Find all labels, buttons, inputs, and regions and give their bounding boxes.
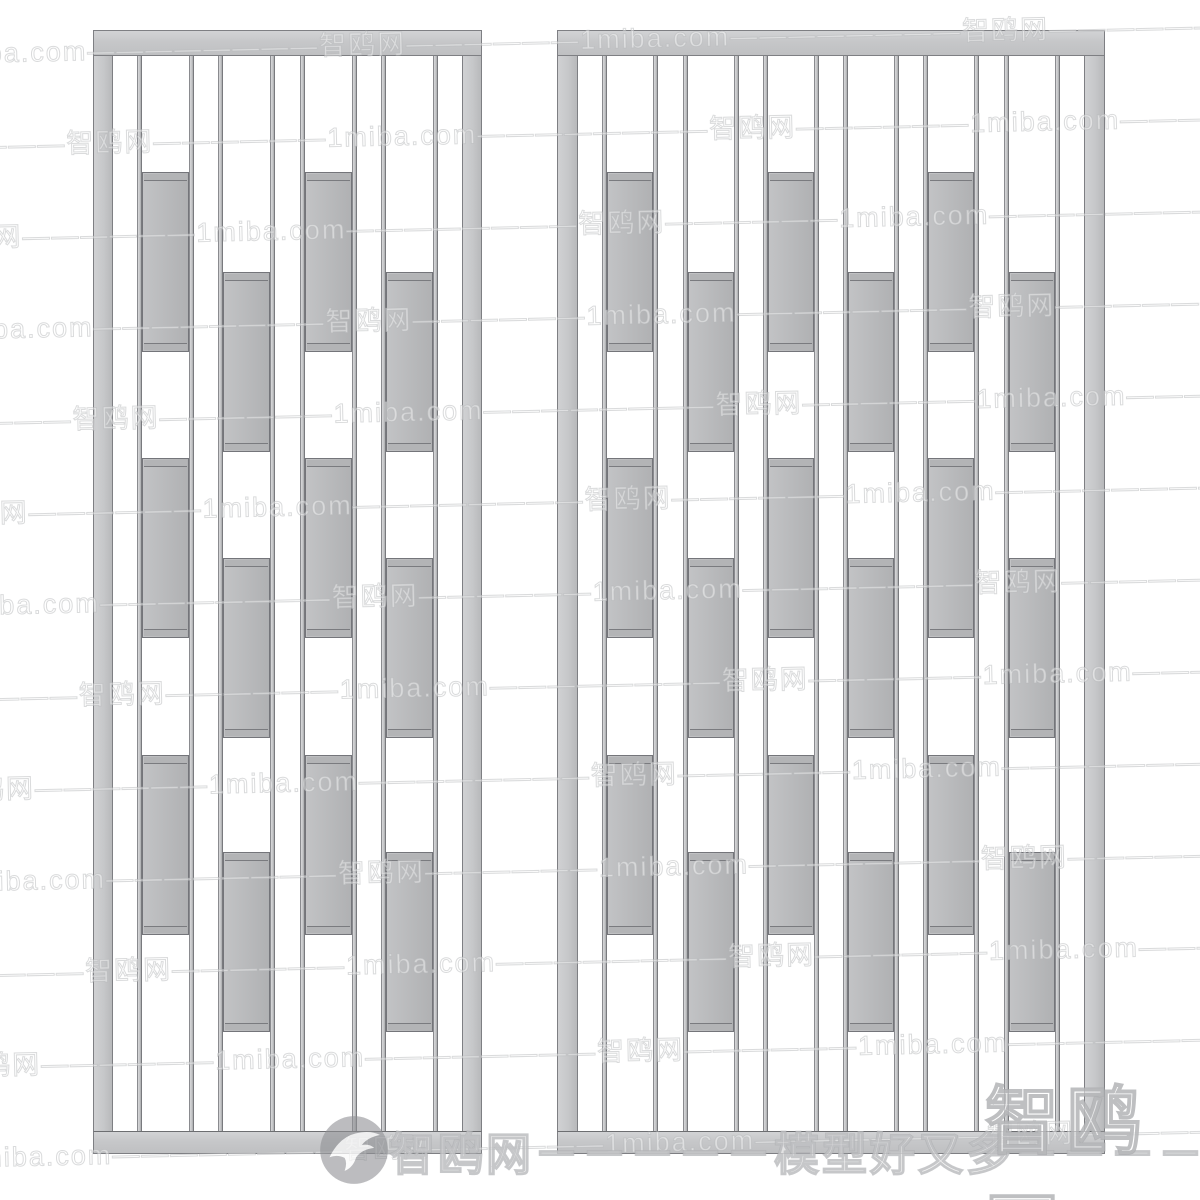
gap [979,56,1003,1131]
1miba-bird-logo-icon [318,1114,390,1186]
top-rail [93,30,482,56]
gap [819,56,843,1131]
gap [578,56,602,1131]
gap [899,56,923,1131]
panel-inner [93,56,482,1131]
gap [113,56,137,1131]
gap [194,56,218,1131]
infill-block [768,458,814,638]
left-screen [93,30,482,1154]
gap [275,56,299,1131]
infill-block [688,272,734,452]
infill-block [386,272,433,452]
gap [438,56,462,1131]
infill-block [1009,852,1055,1032]
block-channel-4 [848,56,894,1131]
watermark-site-id: 智鸥网 ID:230669984 [985,1062,1200,1200]
infill-block [223,272,270,452]
infill-block [607,458,653,638]
block-channel-1 [607,56,653,1131]
panel-inner [557,56,1105,1131]
infill-block [386,558,433,738]
infill-block [768,755,814,935]
block-channel-2 [688,56,734,1131]
block-channel-4 [386,56,433,1131]
infill-block [928,172,974,352]
infill-block [848,852,894,1032]
infill-block [928,458,974,638]
infill-block [1009,272,1055,452]
infill-block [305,755,352,935]
infill-block [223,558,270,738]
infill-block [386,852,433,1032]
block-channel-5 [928,56,974,1131]
infill-block [768,172,814,352]
gap [1060,56,1084,1131]
infill-block [142,458,189,638]
infill-block [607,172,653,352]
block-channel-3 [768,56,814,1131]
right-screen [557,30,1105,1154]
block-channel-6 [1009,56,1055,1131]
infill-block [688,558,734,738]
watermark-site-name: 智鸥网 [985,1062,1200,1200]
left-post [557,56,578,1131]
gap [739,56,763,1131]
gap [357,56,381,1131]
infill-block [607,755,653,935]
infill-block [928,755,974,935]
block-channel-1 [142,56,189,1131]
render-canvas: 智鸥网——————1miba.com————————智鸥网——————1miba… [0,0,1200,1200]
block-channel-3 [305,56,352,1131]
right-post [1084,56,1105,1131]
right-post [462,56,482,1131]
infill-block [848,558,894,738]
infill-block [1009,558,1055,738]
infill-block [848,272,894,452]
infill-block [142,755,189,935]
infill-block [688,852,734,1032]
infill-block [142,172,189,352]
infill-block [305,458,352,638]
gap [658,56,682,1131]
left-post [93,56,113,1131]
block-channel-2 [223,56,270,1131]
infill-block [223,852,270,1032]
infill-block [305,172,352,352]
top-rail [557,30,1105,56]
